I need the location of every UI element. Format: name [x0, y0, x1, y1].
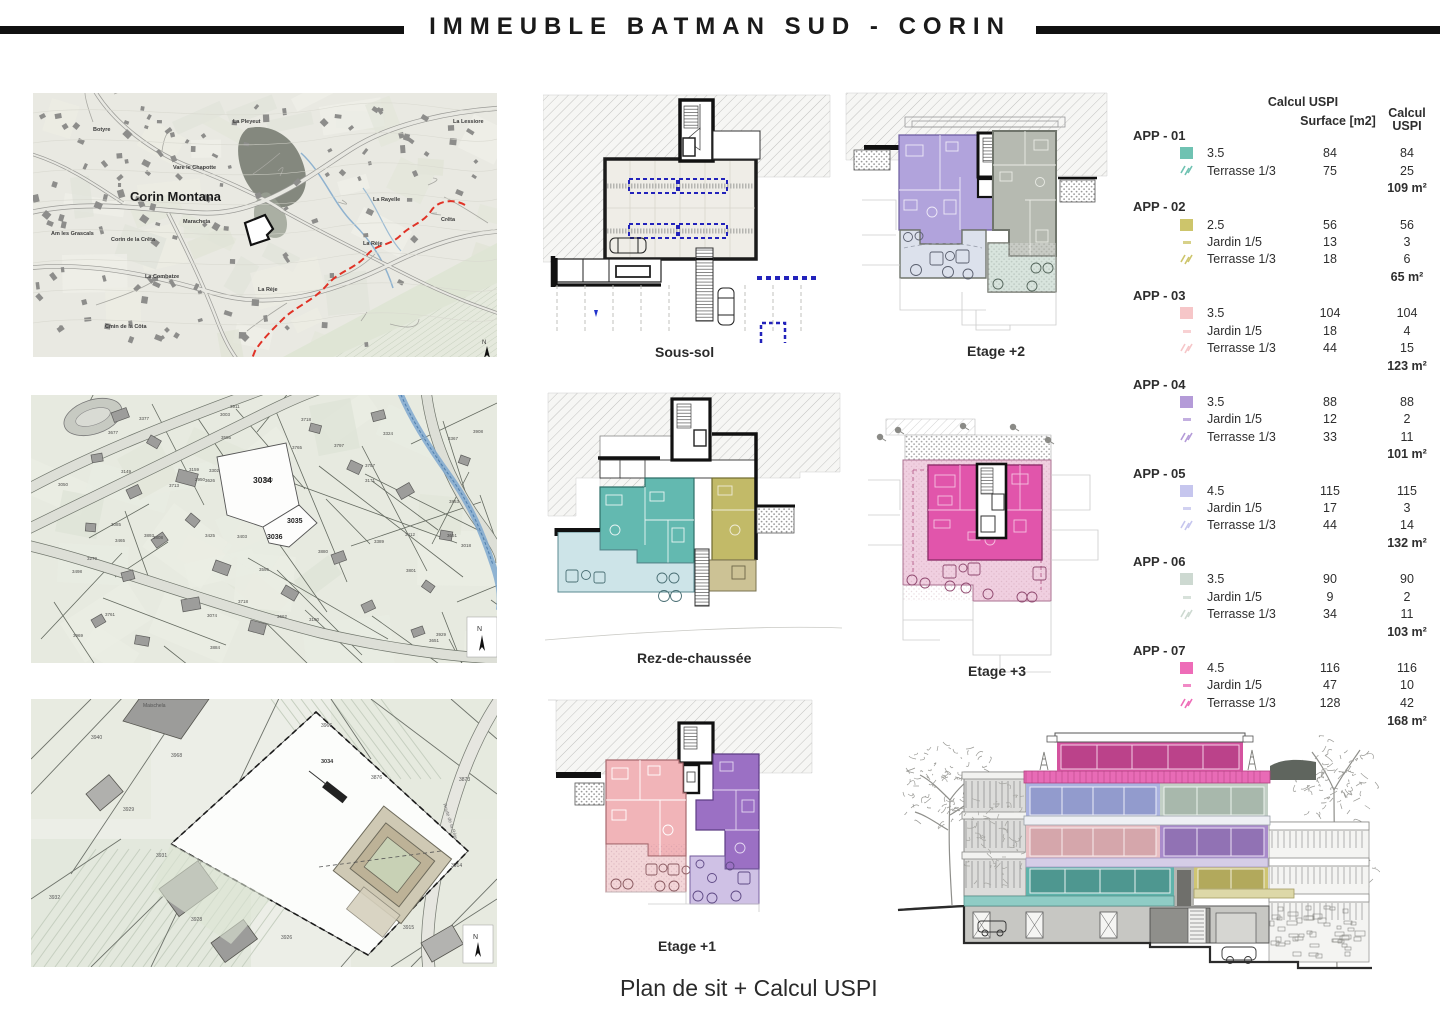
svg-text:3465: 3465	[115, 538, 126, 543]
svg-text:La Combatze: La Combatze	[145, 274, 179, 280]
svg-text:3797: 3797	[334, 443, 345, 448]
svg-text:3929: 3929	[436, 632, 447, 637]
svg-text:3171: 3171	[365, 478, 376, 483]
svg-text:3713: 3713	[169, 483, 180, 488]
svg-text:N: N	[482, 340, 486, 346]
svg-text:3969: 3969	[73, 633, 84, 638]
svg-text:La Rèje: La Rèje	[363, 241, 383, 247]
svg-text:3034: 3034	[321, 759, 334, 765]
svg-text:3718: 3718	[238, 599, 249, 604]
svg-text:Am les Grascals: Am les Grascals	[51, 231, 94, 237]
svg-text:3928: 3928	[191, 917, 202, 923]
svg-text:3412: 3412	[405, 532, 416, 537]
svg-text:3651: 3651	[447, 533, 458, 538]
svg-text:3324: 3324	[383, 431, 394, 436]
svg-text:3908: 3908	[473, 429, 484, 434]
svg-text:3884: 3884	[210, 645, 221, 650]
svg-text:3389: 3389	[374, 539, 385, 544]
svg-text:3085: 3085	[111, 522, 122, 527]
svg-text:3873: 3873	[459, 777, 470, 783]
svg-text:3911: 3911	[230, 404, 240, 409]
svg-text:Crêta: Crêta	[441, 217, 456, 223]
svg-text:3367: 3367	[448, 436, 459, 441]
svg-text:3050: 3050	[58, 482, 69, 487]
svg-text:3662: 3662	[277, 614, 288, 619]
svg-text:3876: 3876	[371, 775, 382, 781]
svg-text:3651: 3651	[429, 638, 440, 643]
svg-text:N: N	[473, 934, 478, 941]
svg-text:3801: 3801	[406, 568, 417, 573]
svg-text:Corin Montana: Corin Montana	[130, 189, 222, 204]
svg-text:3035: 3035	[287, 518, 303, 525]
svg-text:La Rayelle: La Rayelle	[373, 197, 400, 203]
svg-text:Botyre: Botyre	[93, 127, 110, 133]
svg-text:3190: 3190	[309, 617, 320, 622]
svg-text:3931: 3931	[156, 853, 167, 859]
svg-text:3966: 3966	[321, 723, 332, 729]
svg-text:3761: 3761	[105, 612, 116, 617]
svg-text:3765: 3765	[292, 445, 303, 450]
svg-text:3034: 3034	[253, 475, 272, 485]
svg-text:3915: 3915	[403, 925, 414, 931]
svg-text:3279: 3279	[87, 556, 98, 561]
svg-text:3718: 3718	[301, 417, 312, 422]
svg-text:3929: 3929	[123, 807, 134, 813]
svg-text:3757: 3757	[365, 463, 376, 468]
svg-text:3403: 3403	[237, 534, 248, 539]
svg-text:3302: 3302	[209, 468, 220, 473]
svg-text:La Lessiore: La Lessiore	[453, 119, 484, 125]
svg-text:3036: 3036	[267, 534, 283, 541]
svg-text:3595: 3595	[259, 567, 270, 572]
svg-text:Vare le Chapotte: Vare le Chapotte	[173, 165, 216, 171]
svg-text:La Pleyeut: La Pleyeut	[233, 119, 261, 125]
svg-text:3926: 3926	[281, 935, 292, 941]
svg-text:3880: 3880	[318, 549, 329, 554]
svg-text:Maischela: Maischela	[143, 703, 166, 709]
svg-text:3377: 3377	[139, 416, 150, 421]
svg-text:3940: 3940	[91, 735, 102, 741]
svg-text:3853: 3853	[449, 499, 460, 504]
svg-text:3498: 3498	[72, 569, 83, 574]
svg-text:La Rèje: La Rèje	[258, 287, 278, 293]
svg-text:3932: 3932	[49, 895, 60, 901]
svg-text:2950: 2950	[195, 477, 206, 482]
svg-text:3586: 3586	[221, 435, 232, 440]
svg-text:3003: 3003	[220, 412, 231, 417]
svg-text:3968: 3968	[171, 753, 182, 759]
svg-text:N: N	[477, 626, 482, 633]
svg-text:3149: 3149	[121, 469, 132, 474]
svg-text:Cmin de la Cöta: Cmin de la Cöta	[105, 324, 148, 330]
svg-text:Corin de la Crêta: Corin de la Crêta	[111, 237, 156, 243]
svg-text:3677: 3677	[108, 430, 119, 435]
svg-text:3018: 3018	[461, 543, 472, 548]
svg-text:3159: 3159	[189, 467, 200, 472]
svg-text:3914: 3914	[451, 863, 462, 869]
svg-text:3425: 3425	[205, 533, 216, 538]
svg-text:3808: 3808	[153, 535, 164, 540]
svg-text:3626: 3626	[205, 478, 216, 483]
svg-text:3074: 3074	[207, 613, 218, 618]
svg-text:Maracheta: Maracheta	[183, 219, 211, 225]
